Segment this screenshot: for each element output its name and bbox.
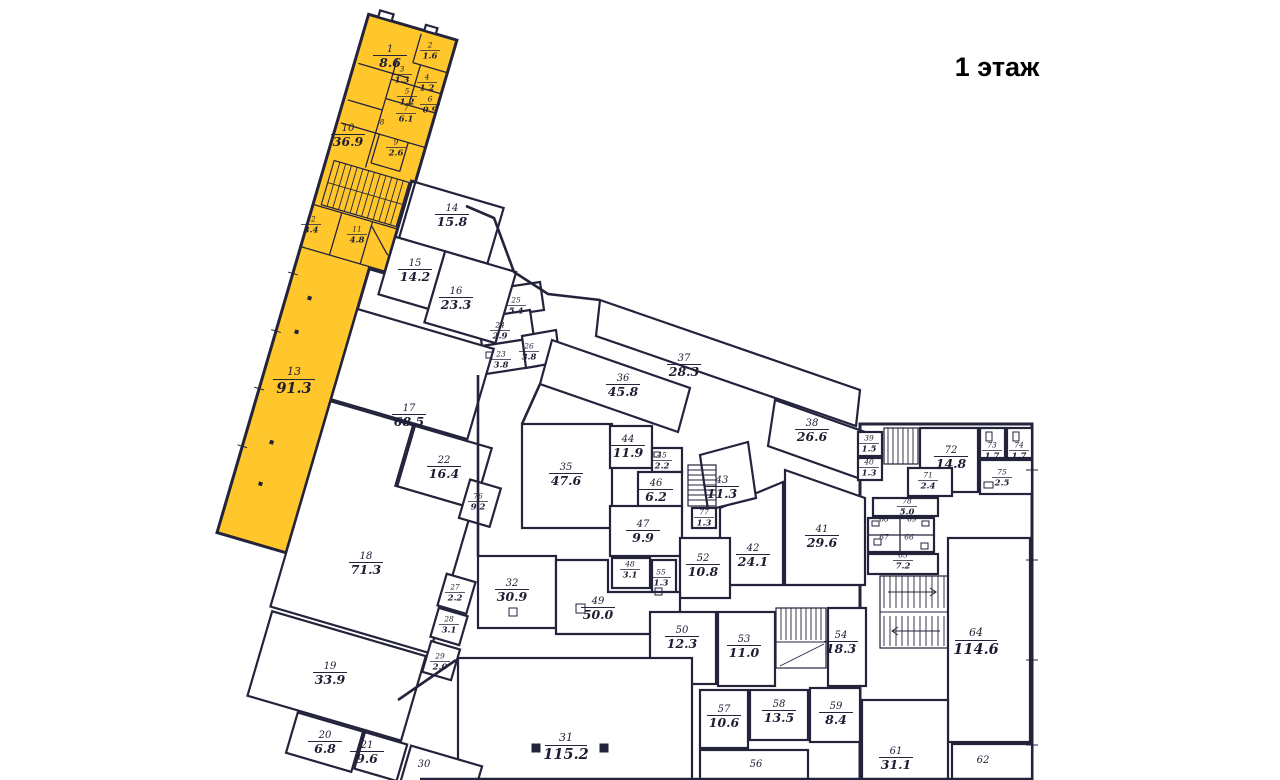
room-number: 75 [997, 468, 1007, 477]
room-number: 6 [428, 95, 433, 104]
room-number: 77 [699, 508, 709, 517]
room-label-62: 62 [977, 755, 990, 766]
room-number: 11 [352, 225, 362, 234]
room-number: 26 [523, 342, 534, 351]
room-area: 11.9 [613, 445, 644, 460]
room-area: 2.5 [994, 479, 1010, 489]
room-area: 9.6 [356, 751, 378, 766]
room-number: 9 [394, 138, 399, 147]
room-area: 23.3 [440, 297, 472, 312]
room-number: 49 [591, 596, 605, 607]
room-area: 2.2 [654, 462, 670, 472]
room-number: 13 [287, 365, 301, 378]
room-number: 14 [446, 203, 459, 214]
room-area: 1.3 [862, 469, 877, 479]
room-area: 15.8 [437, 214, 468, 229]
room-number: 61 [890, 746, 903, 757]
room-number: 68 [879, 515, 889, 524]
room-number: 3 [400, 65, 405, 74]
room-area: 3.1 [442, 626, 457, 636]
room-number: 32 [506, 578, 519, 589]
room-area: 13.5 [764, 710, 794, 725]
room-area: 8.6 [379, 55, 401, 70]
room-area: 68.5 [394, 414, 424, 429]
room-number: 62 [977, 755, 990, 766]
room-number: 25 [510, 296, 521, 305]
room-number: 78 [902, 497, 912, 506]
floor-plan-svg: 18.621.631.341.251.260.976.1892.61036.91… [0, 0, 1280, 780]
room-area: 9.9 [632, 530, 654, 545]
room-area: 2.9 [492, 332, 508, 342]
room-area: 26.6 [796, 429, 828, 444]
room-number: 56 [750, 759, 763, 770]
room-number: 20 [318, 730, 332, 741]
room-area: 6.2 [645, 489, 667, 504]
room-area: 29.6 [806, 535, 838, 550]
room-label-56: 56 [750, 759, 763, 770]
room-area: 7.2 [896, 562, 911, 572]
room-number: 52 [697, 553, 710, 564]
room-label-67: 67 [879, 533, 889, 542]
room-number: 22 [437, 455, 451, 466]
room-number: 10 [342, 123, 355, 134]
room-area: 3.4 [304, 226, 319, 236]
room-number: 58 [773, 699, 786, 710]
room-area: 1.7 [985, 452, 1000, 462]
room-area: 31.1 [881, 757, 911, 772]
room-number: 57 [718, 704, 731, 715]
room-number: 55 [656, 568, 666, 577]
room-area: 30.9 [497, 589, 528, 604]
room-number: 71 [923, 471, 933, 480]
room-area: 24.1 [737, 554, 768, 569]
room-number: 18 [360, 551, 373, 562]
room-number: 41 [815, 524, 829, 535]
room-area: 45.8 [608, 384, 639, 399]
room-number: 45 [656, 451, 667, 460]
room-label-30: 30 [418, 759, 431, 770]
room-number: 50 [676, 625, 689, 636]
room-label-68: 68 [879, 515, 889, 524]
room-number: 59 [830, 701, 843, 712]
room-number: 74 [1014, 441, 1024, 450]
room-area: 50.0 [583, 607, 614, 622]
room-area: 12.3 [667, 636, 698, 651]
room-area: 3.1 [623, 571, 638, 581]
room-number: 1 [387, 44, 393, 55]
floor-title: 1 этаж [955, 52, 1040, 82]
room-area: 9.2 [471, 503, 486, 513]
room-area: 4.8 [350, 236, 365, 246]
room-number: 44 [621, 434, 635, 445]
room-label-66: 66 [904, 533, 914, 542]
room-label-8: 8 [380, 118, 385, 127]
room-62-outline [952, 744, 1032, 780]
room-number: 27 [449, 583, 460, 592]
room-number: 15 [409, 258, 422, 269]
room-number: 54 [835, 630, 848, 641]
staircase-53-54 [776, 608, 826, 668]
room-number: 5 [405, 87, 410, 96]
room-area: 1.2 [420, 84, 435, 94]
room-area: 1.3 [697, 519, 712, 529]
room-number: 35 [560, 462, 573, 473]
room-number: 66 [904, 533, 914, 542]
room-number: 21 [360, 740, 374, 751]
room-number: 12 [306, 215, 316, 224]
room-number: 67 [879, 533, 889, 542]
room-area: 11.3 [707, 486, 738, 501]
room-number: 72 [945, 445, 958, 456]
room-area: 5.0 [900, 508, 915, 518]
room-area: 3.8 [494, 361, 509, 371]
room-number: 73 [987, 441, 997, 450]
room-number: 76 [473, 492, 483, 501]
room-number: 30 [418, 759, 431, 770]
room-number: 4 [424, 73, 430, 82]
room-area: 10.6 [709, 715, 740, 730]
room-number: 38 [806, 418, 819, 429]
room-area: 28.3 [668, 364, 700, 379]
room-number: 2 [427, 41, 433, 50]
room-number: 43 [715, 475, 729, 486]
room-number: 29 [434, 652, 445, 661]
room-number: 36 [617, 373, 630, 384]
room-area: 1.3 [654, 579, 669, 589]
room-area: 36.9 [333, 134, 364, 149]
room-number: 8 [380, 118, 385, 127]
staircase-main [880, 576, 948, 648]
room-number: 16 [450, 286, 463, 297]
room-75-outline [980, 460, 1032, 494]
room-area: 16.4 [429, 466, 459, 481]
room-area: 33.9 [315, 672, 346, 687]
room-area: 114.6 [953, 641, 998, 658]
column-marker [600, 744, 608, 752]
room-area: 2.6 [388, 149, 404, 159]
room-area: 71.3 [351, 562, 382, 577]
room-area: 2.2 [447, 594, 463, 604]
room-area: 115.2 [543, 746, 588, 763]
room-number: 17 [403, 403, 416, 414]
room-area: 8.4 [825, 712, 847, 727]
room-area: 3.8 [522, 353, 537, 363]
room-number: 53 [738, 634, 751, 645]
room-number: 7 [404, 104, 409, 113]
room-number: 47 [636, 519, 650, 530]
room-area: 2.4 [920, 482, 936, 492]
room-area: 1.3 [395, 76, 410, 86]
room-area: 0.9 [423, 106, 438, 116]
room-area: 14.2 [400, 269, 431, 284]
room-area: 11.0 [729, 645, 760, 660]
room-number: 24 [494, 321, 505, 330]
room-area: 14.8 [936, 456, 967, 471]
room-number: 23 [495, 350, 506, 359]
room-area: 5.4 [509, 307, 524, 317]
room-number: 42 [746, 543, 760, 554]
room-number: 37 [678, 353, 691, 364]
room-area: 1.6 [423, 52, 438, 62]
room-number: 65 [898, 551, 908, 560]
room-number: 40 [863, 458, 874, 467]
room-area: 1.7 [1012, 452, 1027, 462]
room-number: 64 [969, 626, 983, 639]
room-number: 48 [624, 560, 635, 569]
room-area: 47.6 [551, 473, 582, 488]
room-area: 2.0 [432, 663, 448, 673]
room-number: 46 [649, 478, 663, 489]
room-area: 6.8 [314, 741, 336, 756]
room-number: 31 [559, 731, 573, 744]
room-number: 28 [443, 615, 454, 624]
room-number: 39 [864, 434, 874, 443]
room-area: 18.3 [826, 641, 857, 656]
room-area: 6.1 [399, 115, 414, 125]
room-number: 19 [324, 661, 337, 672]
floor-plan-page: 18.621.631.341.251.260.976.1892.61036.91… [0, 0, 1280, 780]
room-area: 91.3 [276, 380, 311, 397]
room-area: 10.8 [688, 564, 719, 579]
column-marker [532, 744, 540, 752]
room-area: 1.5 [862, 445, 877, 455]
